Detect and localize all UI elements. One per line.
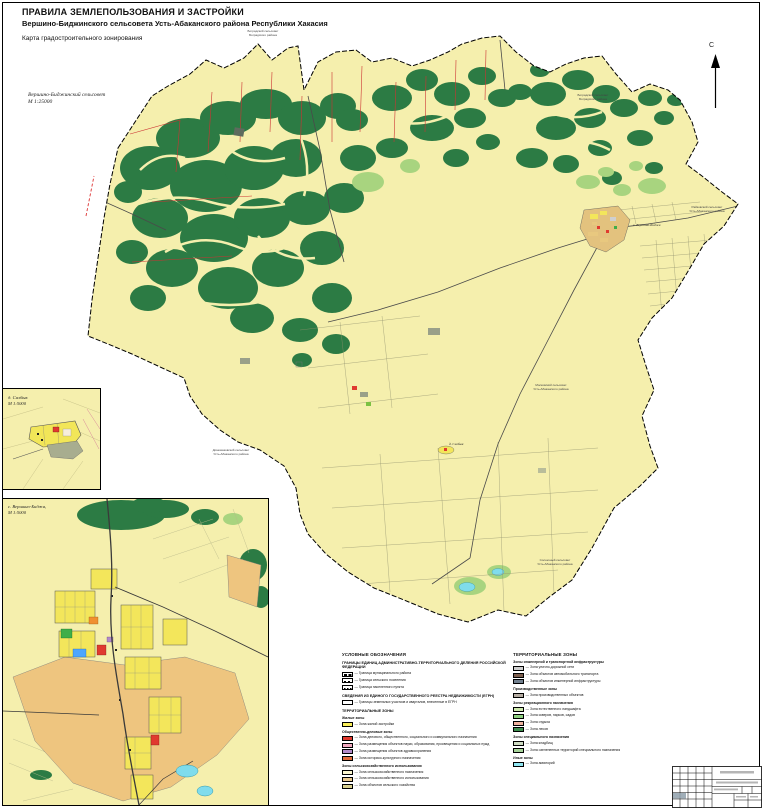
adjacent-area-label: Боградский сельсовет Боградского района: [228, 30, 298, 38]
zone-color-swatch: [513, 693, 524, 698]
inset-salbyk-label: д. Салбык М 1:5000: [8, 395, 28, 407]
legend-item: Граница сельского поселения: [342, 678, 511, 683]
legend-item: Зона сельскохозяйственного назначения: [342, 770, 511, 775]
legend-zones-header-right: ТЕРРИТОРИАЛЬНЫЕ ЗОНЫ: [513, 652, 756, 657]
zone-color-swatch: [342, 770, 353, 775]
zone-color-swatch: [342, 722, 353, 727]
settlement-salbyk: [438, 446, 454, 454]
legend-item: Зона объектов сельского хозяйства: [342, 784, 511, 789]
north-label: С: [709, 42, 714, 49]
legend-item: Зона естественного ландшафта: [513, 707, 756, 712]
legend-item: Зона историко-культурного назначения: [342, 756, 511, 761]
inset-map-vershino-bidzha: с. Вершино-Биджа, М 1:5000: [2, 498, 269, 806]
area-scale: М 1:25000: [28, 99, 105, 106]
page-subtitle: Вершино-Биджинского сельсовета Усть-Абак…: [22, 19, 328, 28]
title-block: [672, 766, 762, 808]
boundary-line-swatch: [342, 672, 353, 677]
zone-color-swatch: [513, 762, 524, 767]
page-title: ПРАВИЛА ЗЕМЛЕПОЛЬЗОВАНИЯ И ЗАСТРОЙКИ: [22, 7, 328, 17]
legend-boundaries-header: ГРАНИЦЫ ЕДИНИЦ АДМИНИСТРАТИВНО-ТЕРРИТОРИ…: [342, 661, 511, 670]
legend-item: Границы земельных участков и кварталов, …: [342, 700, 511, 705]
zone-color-swatch: [342, 743, 353, 748]
zone-color-swatch: [513, 679, 524, 684]
legend-group-title: Производственные зоны: [513, 687, 756, 691]
legend-item: Зона лесов: [513, 727, 756, 732]
zone-color-swatch: [342, 700, 353, 705]
main-map-scale-label: Вершино-Биджинский сельсовет М 1:25000: [28, 92, 105, 107]
legend-item: Зона отдыха: [513, 721, 756, 726]
legend-item: Граница муниципального района: [342, 672, 511, 677]
legend-item: Зона размещения объектов здравоохранения: [342, 749, 511, 754]
stamp-mark: [673, 793, 686, 799]
boundary-line-swatch: [342, 685, 353, 690]
settlement-label: д. Салбык: [449, 442, 464, 446]
north-arrow: [711, 54, 720, 108]
district-boundary-red: [86, 176, 94, 216]
zone-color-swatch: [342, 749, 353, 754]
zone-color-swatch: [513, 748, 524, 753]
adjacent-area-label: Солнечный сельсовет Усть-Абаканского рай…: [520, 559, 590, 567]
zone-color-swatch: [513, 741, 524, 746]
legend-group-title: Иные зоны: [513, 756, 756, 760]
zoning-map-sheet: { "document": { "title": "ПРАВИЛА ЗЕМЛЕП…: [0, 0, 764, 810]
legend-item: Зона производственных объектов: [513, 693, 756, 698]
zone-color-swatch: [342, 777, 353, 782]
legend-item: Граница населенного пункта: [342, 685, 511, 690]
legend-group-title: Зоны рекреационного назначения: [513, 701, 756, 705]
zone-color-swatch: [513, 721, 524, 726]
legend-item: Зона скверов, парков, садов: [513, 714, 756, 719]
public-zone-block: [53, 427, 59, 432]
legend-group-title: Зоны специального назначения: [513, 735, 756, 739]
legend-group-title: Общественно-деловые зоны: [342, 730, 511, 734]
zone-color-swatch: [513, 666, 524, 671]
zone-color-swatch: [513, 727, 524, 732]
legend-item: Зона делового, общественного, социальног…: [342, 736, 511, 741]
legend-group-title: Зоны инженерной и транспортной инфрастру…: [513, 660, 756, 664]
boundary-line-swatch: [342, 678, 353, 683]
legend-item: Зона улично-дорожной сети: [513, 666, 756, 671]
zone-color-swatch: [342, 756, 353, 761]
adjacent-area-label: Московский сельсовет Усть-Абаканского ра…: [516, 384, 586, 392]
area-name: Вершино-Биджинский сельсовет: [28, 92, 105, 99]
adjacent-area-label: Доможаковский сельсовет Усть-Абаканского…: [196, 449, 266, 457]
legend-group-title: Жилые зоны: [342, 716, 511, 720]
legend-item: Зона озелененных территорий специального…: [513, 748, 756, 753]
zone-color-swatch: [513, 707, 524, 712]
inset-vb-canvas: [3, 499, 268, 805]
legend-group-title: Зоны сельскохозяйственного использования: [342, 764, 511, 768]
adjacent-area-label: Боградский сельсовет Боградского района: [558, 94, 628, 102]
legend-item: Зона объектов инженерной инфраструктуры: [513, 679, 756, 684]
adjacent-area-label: Райковский сельсовет Усть-Абаканского ра…: [672, 206, 742, 214]
zone-color-swatch: [342, 736, 353, 741]
legend-item: Зона размещения объектов науки, образова…: [342, 743, 511, 748]
legend-item: Зона жилой застройки: [342, 722, 511, 727]
legend-item: Зона объектов автомобильного транспорта: [513, 673, 756, 678]
settlement-label: с. Вершино-Биджа: [633, 223, 660, 227]
legend-zones-header: ТЕРРИТОРИАЛЬНЫЕ ЗОНЫ: [342, 709, 511, 714]
zone-color-swatch: [342, 784, 353, 789]
legend-title: УСЛОВНЫЕ ОБОЗНАЧЕНИЯ: [342, 652, 511, 657]
legend-egrn-header: СВЕДЕНИЯ ИЗ ЕДИНОГО ГОСУДАРСТВЕННОГО РЕЕ…: [342, 694, 511, 699]
inset-vb-label: с. Вершино-Биджа, М 1:5000: [8, 504, 46, 516]
zone-color-swatch: [513, 673, 524, 678]
inset-map-salbyk: д. Салбык М 1:5000: [2, 388, 101, 490]
legend-item: Зона кладбищ: [513, 741, 756, 746]
legend-item: Зона сельскохозяйственного использования: [342, 777, 511, 782]
zone-color-swatch: [513, 714, 524, 719]
